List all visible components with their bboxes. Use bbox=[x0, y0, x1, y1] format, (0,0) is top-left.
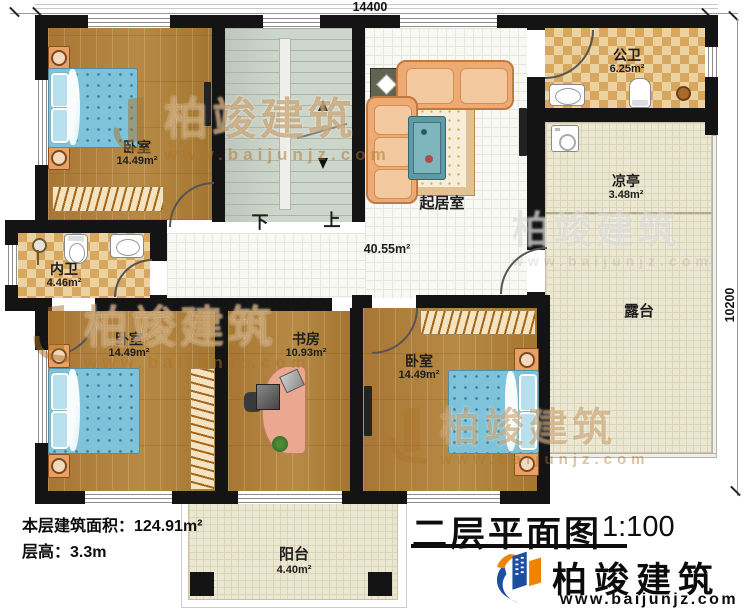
bed-sheet bbox=[505, 371, 518, 451]
nightstand bbox=[48, 454, 70, 478]
window bbox=[35, 350, 48, 443]
wall bbox=[527, 15, 545, 30]
wall bbox=[5, 298, 52, 311]
room-label-bedroom-br: 卧室14.49m² bbox=[382, 354, 456, 381]
room-label-pavilion: 凉亭3.48m² bbox=[589, 174, 663, 201]
room-label-balcony: 阳台4.40m² bbox=[257, 547, 331, 576]
top-dimension-label: 14400 bbox=[335, 0, 405, 14]
wall bbox=[228, 298, 332, 311]
window bbox=[705, 47, 718, 77]
nightstand bbox=[514, 348, 539, 372]
dimension-tick bbox=[9, 7, 20, 18]
stair-arrow-up bbox=[318, 100, 328, 111]
tv bbox=[364, 386, 372, 436]
pillow bbox=[519, 374, 537, 412]
plant bbox=[272, 436, 288, 452]
wardrobe bbox=[190, 368, 215, 490]
tv bbox=[519, 108, 527, 156]
nightstand bbox=[48, 344, 70, 368]
right-dimension-line bbox=[737, 18, 738, 496]
balcony-corner-post bbox=[368, 572, 392, 596]
nightstand bbox=[48, 46, 70, 70]
room-label-study: 书房10.93m² bbox=[269, 332, 343, 359]
wall bbox=[5, 220, 167, 233]
wall bbox=[352, 28, 365, 222]
toilet bbox=[64, 234, 88, 264]
wardrobe bbox=[52, 186, 164, 212]
wardrobe bbox=[420, 310, 536, 335]
room-area-living: 40.55m² bbox=[345, 243, 429, 257]
bed-sheet bbox=[67, 69, 80, 145]
bed-sheet bbox=[67, 369, 80, 451]
building-area-text: 本层建筑面积：124.91m² bbox=[22, 512, 203, 536]
stair-down-label: 下 bbox=[240, 214, 280, 233]
computer-monitor bbox=[256, 384, 280, 410]
wall bbox=[215, 311, 228, 492]
terrace-floor bbox=[545, 213, 712, 453]
pavilion-terrace-divider bbox=[545, 212, 712, 214]
window bbox=[35, 80, 48, 165]
pillow bbox=[519, 412, 537, 450]
coffee-table bbox=[408, 116, 446, 180]
balcony-corner-post bbox=[190, 572, 214, 596]
balcony-sliding-door bbox=[238, 491, 342, 504]
wall bbox=[95, 298, 228, 311]
floor-plan: 14400 10200 bbox=[0, 0, 750, 614]
wall bbox=[350, 308, 363, 492]
wall bbox=[527, 292, 545, 308]
wall bbox=[527, 77, 545, 250]
floor-drain bbox=[676, 86, 691, 101]
floor-height-text: 层高：3.3m bbox=[22, 538, 106, 562]
wall bbox=[527, 108, 717, 122]
corridor-floor bbox=[167, 233, 365, 298]
toilet bbox=[629, 78, 651, 108]
stair-rail bbox=[279, 38, 291, 210]
stair-arrow-down bbox=[318, 158, 328, 169]
window bbox=[85, 491, 172, 504]
wall bbox=[352, 295, 372, 308]
right-dimension-label: 10200 bbox=[723, 275, 737, 335]
window bbox=[88, 15, 170, 28]
sink bbox=[549, 84, 585, 106]
room-label-bedroom-bl: 卧室14.49m² bbox=[92, 332, 166, 359]
room-label-inner-bathroom: 内卫4.46m² bbox=[28, 262, 100, 289]
washing-machine bbox=[551, 125, 579, 152]
shower-head bbox=[32, 238, 47, 253]
window bbox=[400, 15, 497, 28]
room-label-bedroom-tl: 卧室14.49m² bbox=[100, 140, 174, 167]
room-label-public-bathroom: 公卫6.25m² bbox=[590, 48, 664, 75]
terrace-railing-right bbox=[712, 135, 717, 458]
window bbox=[407, 491, 500, 504]
brand-logo-icon bbox=[486, 548, 546, 610]
window bbox=[263, 15, 320, 28]
wall bbox=[150, 233, 167, 261]
sink bbox=[110, 234, 144, 258]
window bbox=[5, 245, 18, 285]
drawing-scale: 1:100 bbox=[602, 511, 675, 544]
nightstand bbox=[514, 452, 539, 476]
brand-website: www.baijunjz.com bbox=[560, 591, 738, 609]
room-label-living: 起居室 bbox=[402, 196, 482, 213]
stair-up-label: 上 bbox=[312, 212, 352, 231]
room-label-terrace: 露台 bbox=[602, 304, 676, 321]
terrace-railing-bottom bbox=[545, 453, 717, 458]
nightstand bbox=[48, 146, 70, 170]
dimension-tick bbox=[730, 486, 741, 497]
tv bbox=[204, 82, 211, 126]
